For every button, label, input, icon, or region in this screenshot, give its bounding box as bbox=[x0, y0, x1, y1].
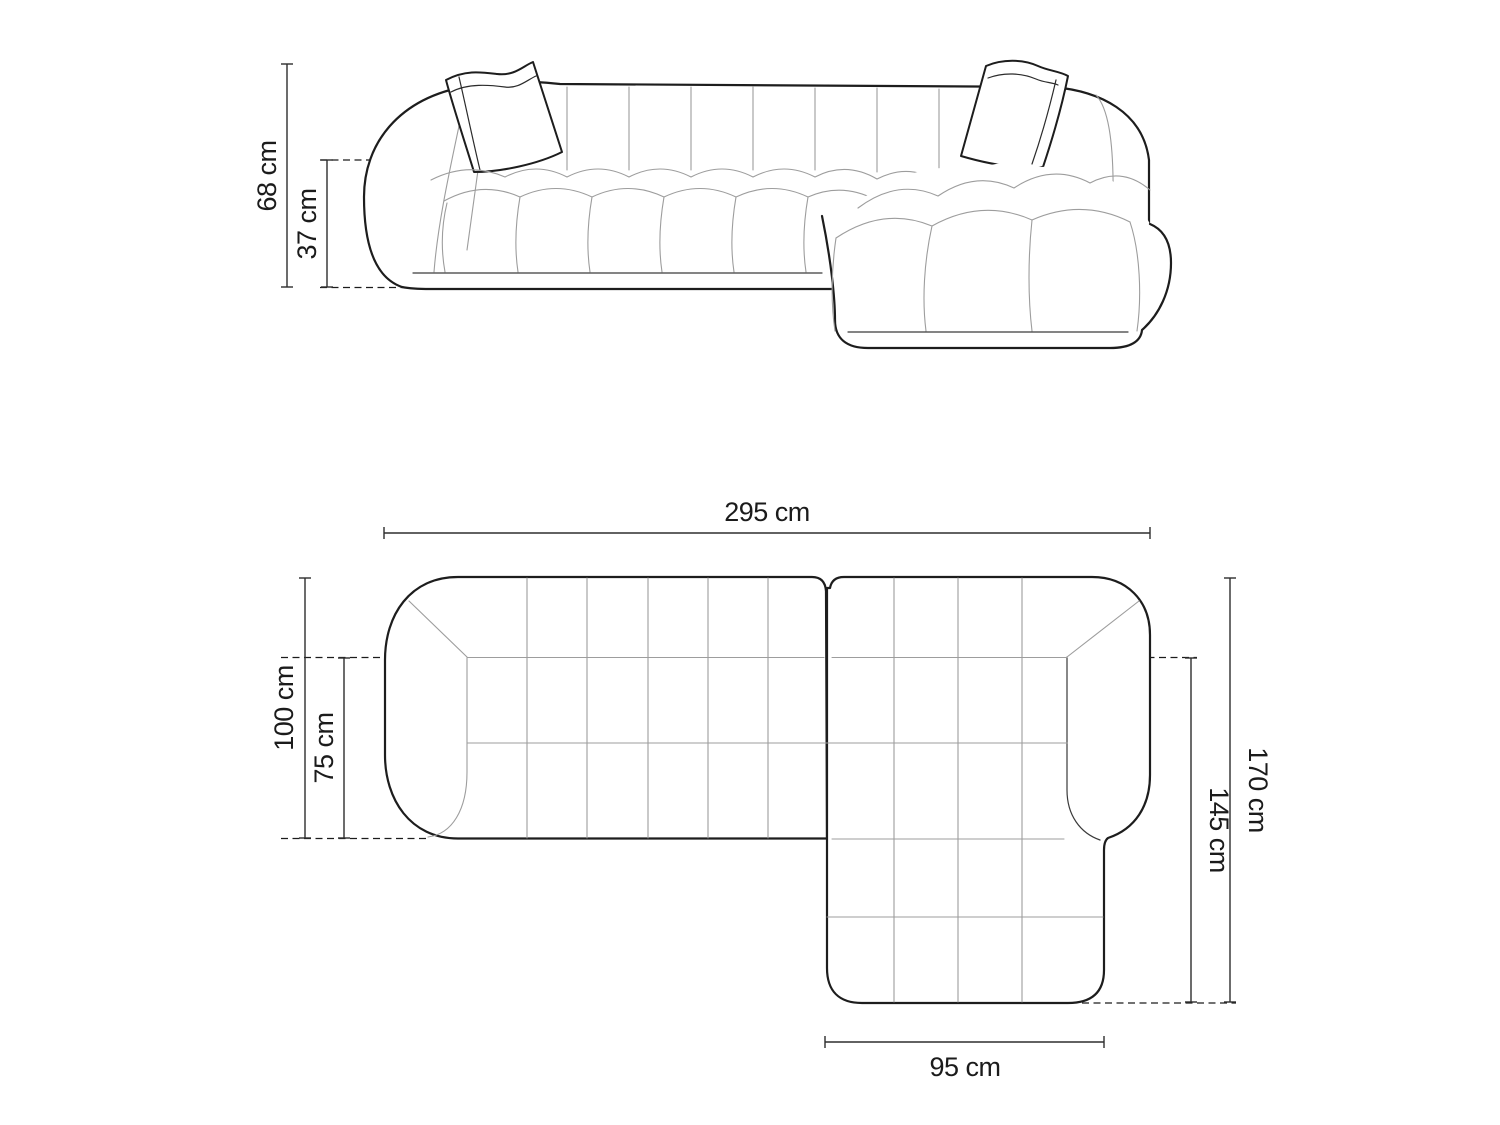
technical-drawing: 68 cm 37 cm bbox=[0, 0, 1500, 1125]
dim-label-overall-width: 295 cm bbox=[724, 497, 810, 527]
dim-label-seat-depth: 75 cm bbox=[309, 712, 339, 783]
dim-label-overall-height: 68 cm bbox=[252, 140, 282, 211]
dim-label-overall-depth: 100 cm bbox=[269, 665, 299, 751]
dim-label-total-length: 170 cm bbox=[1243, 747, 1273, 833]
dim-label-seat-height: 37 cm bbox=[292, 188, 322, 259]
dim-label-chaise-width: 95 cm bbox=[929, 1052, 1000, 1082]
plan-left-module-outline bbox=[385, 577, 827, 839]
technical-drawing-page: 68 cm 37 cm bbox=[0, 0, 1500, 1125]
dim-label-inner-length: 145 cm bbox=[1204, 787, 1234, 873]
plan-right-module-outline bbox=[827, 577, 1150, 1003]
